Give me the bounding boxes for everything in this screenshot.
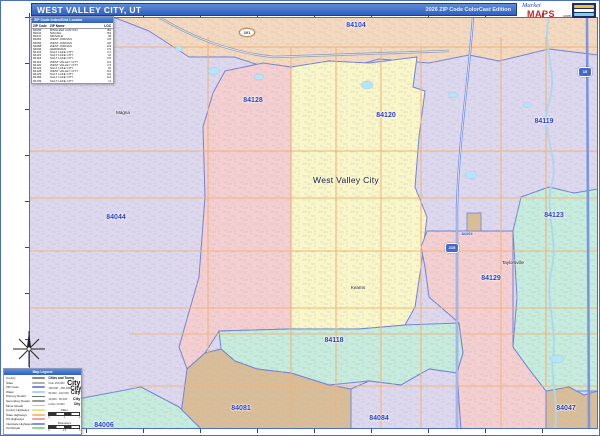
zip-region-84104-exclave [467, 213, 481, 231]
legend-item-label: State Highways [6, 413, 27, 417]
cell-loc: I1 [100, 80, 111, 83]
legend-item-swatch [32, 386, 45, 388]
mi-tick-end: 2 [79, 416, 80, 419]
mi-tick-mid: 1 [64, 416, 65, 419]
badge-bar-cyan [574, 13, 594, 16]
brand-wordmark: Market MAPS .com [519, 2, 572, 19]
scale-miles-ticks: 0 1 2 [48, 416, 80, 419]
interstate-15-shield-icon: 15 [578, 67, 592, 77]
page-title: WEST VALLEY CITY, UT [37, 5, 142, 15]
legend-item-swatch [32, 427, 45, 429]
legend-item-label: Secondary Roads [6, 399, 30, 403]
legend-item-label: Primary Roads [6, 394, 26, 398]
legend-item-label: US Highways [6, 417, 24, 421]
km-tick-start: 0 [48, 429, 49, 432]
zip-index-rows: 84006 BINGHAM CANYON B9 84044 MAGNA B4 8… [32, 29, 113, 83]
legend-item-swatch [32, 405, 45, 407]
brand-badge [572, 3, 596, 18]
brand-logo: Market MAPS .com [519, 2, 598, 19]
legend-item-label: Minor Roads [6, 404, 23, 408]
legend-item-label: State [6, 381, 13, 385]
badge-bar-white [574, 9, 594, 12]
map-legend: Map Legend County State ZIP Code Water P… [3, 368, 82, 435]
edition-label: 2026 ZIP Code ColorCast Edition [426, 7, 511, 13]
legend-item-swatch [32, 414, 45, 416]
legend-item-label: Toll Roads [6, 426, 20, 430]
table-row: 84199 SALT LAKE CITY I1 [32, 80, 113, 83]
grid-ruler-bottom [29, 429, 598, 433]
title-bar: WEST VALLEY CITY, UT 2026 ZIP Code Color… [31, 3, 517, 16]
interstate-215-shield-icon: 215 [445, 243, 459, 253]
city-size-range: Under 10,000 [48, 403, 64, 406]
brand-main-text: MAPS [527, 9, 555, 19]
legend-item-swatch [32, 418, 45, 420]
legend-item-swatch [32, 423, 45, 425]
city-size-rows: Over 250,000 City 100,000 - 250,000 City… [48, 381, 80, 407]
scale-km-ticks: 0 1.5 3 [48, 429, 80, 432]
legend-item-swatch [32, 396, 45, 398]
brand-suffix-text: .com [562, 13, 571, 18]
map-page: WEST VALLEY CITY, UT 2026 ZIP Code Color… [0, 0, 600, 436]
zip-index-table: ZIP Code Index/Grid Locator ZIP Code ZIP… [31, 16, 114, 84]
legend-item-swatch [32, 391, 45, 393]
city-size-sample: City [73, 397, 81, 401]
city-size-range: 100,000 - 250,000 [48, 387, 70, 390]
cell-zip-code: 84199 [33, 80, 50, 83]
legend-item-swatch [32, 400, 45, 402]
legend-item-swatch [32, 377, 45, 379]
legend-item-label: County Highways [6, 408, 29, 412]
city-size-range: Over 250,000 [48, 382, 64, 385]
legend-items: County State ZIP Code Water Primary Road… [6, 376, 45, 432]
km-tick-end: 3 [79, 429, 80, 432]
legend-body: County State ZIP Code Water Primary Road… [4, 375, 81, 433]
scale-bar-km: Kilometers 0 1.5 3 [48, 421, 80, 432]
street-texture [29, 17, 598, 429]
legend-item-swatch [32, 409, 45, 411]
brand-script-text: Market [522, 2, 541, 9]
city-size-row: Under 10,000 City [48, 402, 80, 407]
legend-item-swatch [32, 382, 45, 384]
map-canvas [29, 17, 598, 429]
scale-bar-miles: Miles 0 1 2 [48, 408, 80, 419]
legend-item-label: Interstate Highways [6, 422, 32, 426]
mi-tick-start: 0 [48, 416, 49, 419]
cell-zip-name: SALT LAKE CITY [50, 80, 100, 83]
city-size-range: 10,000 - 50,000 [48, 398, 67, 401]
col-zip-code: ZIP Code [33, 24, 50, 28]
legend-item-label: Water [6, 390, 14, 394]
legend-cities-column: Cities and Towns Over 250,000 City 100,0… [48, 376, 80, 432]
route-201-shield-icon: 201 [239, 28, 255, 37]
compass-rose-icon [7, 329, 51, 369]
city-size-range: 50,000 - 100,000 [48, 392, 68, 395]
col-loc: LOC [100, 24, 111, 28]
city-size-sample: City [74, 403, 81, 407]
km-tick-mid: 1.5 [63, 429, 66, 432]
badge-bar-yellow [574, 5, 594, 8]
legend-item: Toll Roads [6, 426, 45, 431]
legend-item-label: County [6, 376, 16, 380]
legend-item-label: ZIP Code [6, 385, 19, 389]
col-zip-name: ZIP Name [50, 24, 100, 28]
